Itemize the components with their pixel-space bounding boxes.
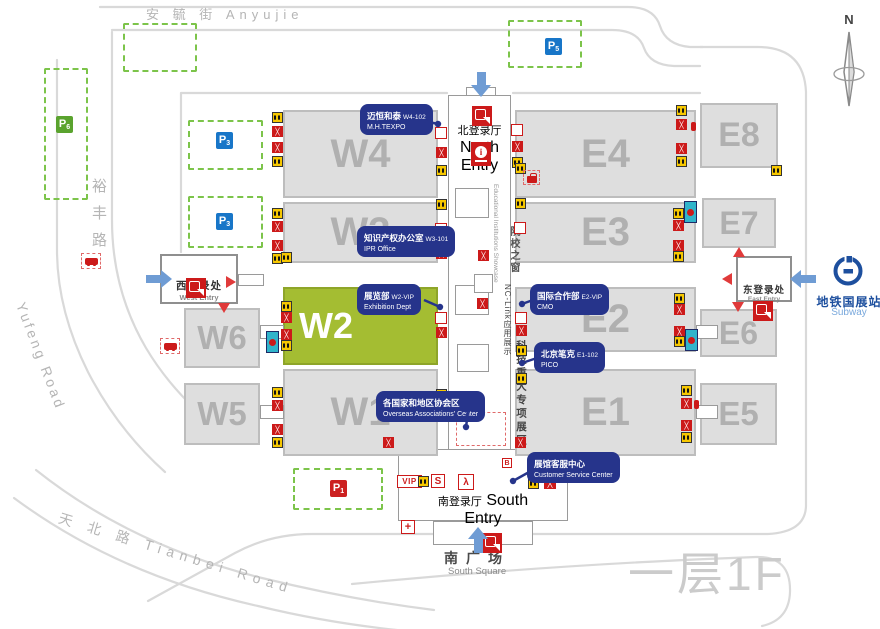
hall-e4[interactable]: E4 — [515, 110, 696, 198]
street-anyujie: 安 毓 街 Anyujie — [146, 4, 303, 23]
restaurant-icon — [674, 304, 685, 315]
parking-number: 6 — [66, 124, 70, 131]
registration-icon — [472, 106, 492, 126]
escalator-icon — [435, 127, 447, 139]
callout-subtitle: Exhibition Dept — [364, 304, 414, 312]
parking-p3-icon[interactable]: P3 — [216, 132, 233, 149]
compass-north-label: N — [827, 12, 871, 27]
shop-icon: S — [431, 474, 445, 488]
parking-number: 1 — [340, 488, 344, 495]
corridor-label: Educational Institutions Showcase — [492, 184, 499, 283]
callout-subtitle: PICO — [541, 362, 598, 370]
escalator-icon — [511, 124, 523, 136]
direction-right-icon — [226, 276, 236, 288]
parking-number: 3 — [226, 221, 230, 228]
escalator-icon — [435, 312, 447, 324]
floor-map: 安 毓 街 Anyujie 裕丰路 Yufeng Road 天 北 路 Tian… — [0, 0, 880, 629]
restaurant-icon — [272, 400, 283, 411]
south-square-label-en: South Square — [448, 566, 506, 577]
street-yufeng-en: Yufeng Road — [13, 300, 69, 412]
toilet-icon — [436, 165, 447, 176]
direction-down-icon — [732, 302, 744, 312]
floor-indicator: 一层1F — [628, 538, 786, 604]
luggage-deposit-icon — [523, 170, 540, 185]
street-yufeng-cn: 裕丰路 — [88, 178, 109, 259]
restaurant-icon — [676, 119, 687, 130]
basement-icon: B — [502, 458, 512, 468]
hall-label-w5: W5 — [197, 395, 247, 433]
restaurant-icon — [478, 250, 489, 261]
hall-label-w2: W2 — [285, 305, 353, 347]
street-tianbei: 天 北 路 Tianbei Road — [56, 508, 296, 599]
callout-name: 国际合作部 — [537, 291, 580, 301]
restaurant-icon — [272, 424, 283, 435]
fire-hydrant-icon — [684, 201, 697, 223]
callout-w4-102[interactable]: 迈恒和泰W4-102M.H.TEXPO — [360, 104, 433, 135]
toilet-icon — [281, 301, 292, 312]
callout-room-code: E1-102 — [577, 352, 598, 359]
callout-subtitle: CMO — [537, 304, 602, 312]
callout-name: 知识产权办公室 — [364, 233, 424, 243]
parking-p3-icon[interactable]: P3 — [216, 213, 233, 230]
corridor-room — [457, 344, 489, 372]
escalator-icon — [514, 222, 526, 234]
restaurant-icon — [281, 312, 292, 323]
fire-hydrant-icon — [266, 331, 279, 353]
hall-e3[interactable]: E3 — [515, 202, 696, 263]
stairs-icon — [458, 474, 474, 490]
callout-name: 迈恒和泰 — [367, 111, 401, 121]
restaurant-icon — [673, 240, 684, 251]
fire-extinguisher-icon — [694, 400, 699, 409]
toilet-icon — [436, 199, 447, 210]
corridor-label: NC-Link应用展示 — [502, 284, 513, 356]
restaurant-icon — [383, 437, 394, 448]
toilet-icon — [418, 476, 429, 487]
toilet-icon — [681, 385, 692, 396]
toilet-icon — [673, 251, 684, 262]
toilet-icon — [681, 432, 692, 443]
hall-label-e4: E4 — [581, 132, 630, 177]
restaurant-icon — [436, 147, 447, 158]
callout-name: 展览部 — [364, 291, 390, 301]
hall-label-e1: E1 — [581, 390, 630, 435]
toilet-icon — [674, 336, 685, 347]
callout-room-code: W2-VIP — [392, 294, 414, 301]
direction-up-icon — [733, 247, 745, 257]
callout-name: 各国家和地区协会区 — [383, 398, 460, 408]
toilet-icon — [674, 293, 685, 304]
callout-room-code: W4-102 — [403, 114, 426, 121]
callout-subtitle: M.H.TEXPO — [367, 124, 426, 132]
hall-label-w6: W6 — [197, 319, 247, 357]
parking-zone — [123, 23, 197, 72]
toilet-icon — [676, 105, 687, 116]
callout-customer-service-center[interactable]: 展馆客服中心Customer Service Center — [527, 452, 620, 483]
subway-logo-icon[interactable] — [831, 254, 865, 288]
toilet-icon — [516, 345, 527, 356]
hall-connector — [238, 274, 264, 286]
callout-name: 展馆客服中心 — [534, 459, 585, 469]
restaurant-icon — [477, 298, 488, 309]
callout-e1-102[interactable]: 北京笔克E1-102PICO — [534, 342, 605, 373]
toilet-icon — [281, 340, 292, 351]
information-icon — [471, 142, 491, 166]
direction-left-icon — [722, 273, 732, 285]
restaurant-icon — [516, 325, 527, 336]
restaurant-icon — [512, 141, 523, 152]
fire-extinguisher-icon — [691, 122, 696, 131]
south-entry[interactable]: 南登录厅 South Entry — [433, 492, 533, 528]
north-entry-arrow-icon — [471, 72, 491, 97]
bus-stop-icon — [81, 253, 101, 269]
east-entry-label: 东登录处 — [738, 282, 790, 296]
restaurant-icon — [272, 240, 283, 251]
escalator-icon — [515, 312, 527, 324]
callout-subtitle: Overseas Associations' Center — [383, 411, 478, 419]
toilet-icon — [272, 208, 283, 219]
first-aid-icon — [401, 520, 415, 534]
restaurant-icon — [281, 329, 292, 340]
callout-room-code: E2-VIP — [582, 294, 603, 301]
hall-label-e7: E7 — [719, 205, 758, 242]
hall-e8[interactable]: E8 — [700, 103, 778, 168]
fire-hydrant-icon — [685, 329, 698, 351]
restaurant-icon — [681, 398, 692, 409]
corridor-room — [455, 188, 489, 218]
toilet-icon — [272, 387, 283, 398]
west-entry-arrow-icon — [146, 270, 172, 288]
registration-icon — [753, 301, 773, 321]
south-entry-arrow-icon — [468, 527, 488, 553]
toilet-icon — [673, 208, 684, 219]
hall-label-e8: E8 — [718, 116, 760, 155]
hall-connector — [696, 405, 718, 419]
toilet-icon — [272, 437, 283, 448]
hall-w5[interactable]: W5 — [184, 383, 260, 445]
callout-room-code: W3-101 — [426, 236, 449, 243]
parking-p1-icon[interactable]: P1 — [330, 480, 347, 497]
callout-name: 北京笔克 — [541, 349, 575, 359]
callout-w2-vip[interactable]: 展览部W2-VIPExhibition Dept — [357, 284, 421, 315]
toilet-icon — [676, 156, 687, 167]
toilet-icon — [281, 252, 292, 263]
restaurant-icon — [272, 142, 283, 153]
toilet-icon — [272, 112, 283, 123]
direction-down-icon — [218, 303, 230, 313]
parking-p5-icon[interactable]: P5 — [545, 38, 562, 55]
restaurant-icon — [515, 437, 526, 448]
north-entry-label: 北登录厅 — [458, 125, 502, 137]
hall-e7[interactable]: E7 — [702, 198, 776, 248]
hall-w6[interactable]: W6 — [184, 308, 260, 368]
callout-w3-101[interactable]: 知识产权办公室W3-101IPR Office — [357, 226, 455, 257]
subway-station-label-en: Subway — [814, 307, 880, 318]
registration-icon — [186, 278, 206, 298]
parking-p6-icon[interactable]: P6 — [56, 116, 73, 133]
east-entry[interactable]: 东登录处 East Entry — [736, 256, 792, 302]
toilet-icon — [516, 373, 527, 384]
toilet-icon — [771, 165, 782, 176]
callout-overseas-associations-center[interactable]: 各国家和地区协会区Overseas Associations' Center — [376, 391, 485, 422]
corridor-room — [474, 274, 493, 293]
toilet-icon — [515, 198, 526, 209]
hall-label-e5: E5 — [718, 395, 758, 433]
hall-label-w4: W4 — [331, 132, 391, 177]
toilet-icon — [272, 156, 283, 167]
corridor-label: 科技重大专项展区 — [514, 340, 529, 448]
hall-e1[interactable]: E1 — [515, 369, 696, 456]
restaurant-icon — [272, 126, 283, 137]
parking-number: 5 — [555, 46, 559, 53]
callout-subtitle: Customer Service Center — [534, 472, 613, 480]
callout-e2-vip[interactable]: 国际合作部E2-VIPCMO — [530, 284, 609, 315]
restaurant-icon — [272, 221, 283, 232]
parking-number: 3 — [226, 140, 230, 147]
restaurant-icon — [436, 327, 447, 338]
hall-connector — [696, 325, 718, 339]
callout-subtitle: IPR Office — [364, 246, 448, 254]
restaurant-icon — [673, 220, 684, 231]
restaurant-icon — [676, 143, 687, 154]
hall-label-e3: E3 — [581, 210, 630, 255]
south-entry-label: 南登录厅 — [438, 496, 482, 508]
parking-zone — [44, 68, 88, 200]
restaurant-icon — [681, 420, 692, 431]
east-entry-arrow-icon — [790, 270, 816, 288]
bus-stop-icon — [160, 338, 180, 354]
